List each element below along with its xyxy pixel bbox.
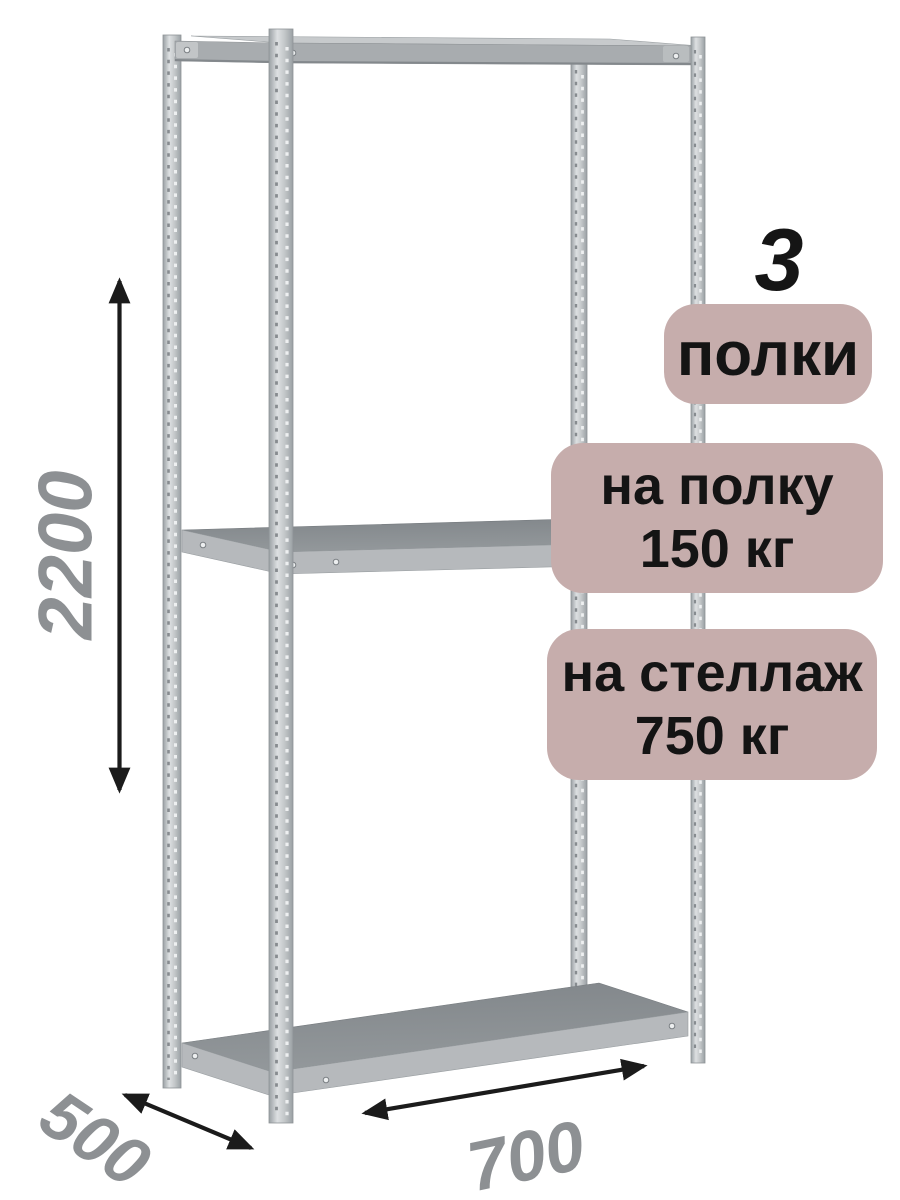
shelf-count-label: полки [677, 319, 859, 390]
rack-post-front-left [269, 29, 293, 1123]
shelf-load-line2: 150 кг [551, 518, 883, 581]
rack-shelf-top [175, 36, 700, 65]
shelf-load-badge: на полку 150 кг [551, 443, 883, 593]
shelf-count-badge: полки [664, 304, 872, 404]
rack-load-line2: 750 кг [547, 705, 877, 768]
rack-shelf-bottom [182, 983, 688, 1096]
shelf-load-line1: на полку [551, 455, 883, 518]
rack-post-back-left [163, 35, 181, 1088]
height-dimension-label: 2200 [23, 470, 110, 639]
rack-load-line1: на стеллаж [547, 642, 877, 705]
shelf-count-number: 3 [727, 210, 831, 310]
rack-load-badge: на стеллаж 750 кг [547, 629, 877, 780]
shelving-rack-illustration [0, 0, 900, 1200]
product-image: 2200 500 700 3 полки на полку 150 кг на … [0, 0, 900, 1200]
